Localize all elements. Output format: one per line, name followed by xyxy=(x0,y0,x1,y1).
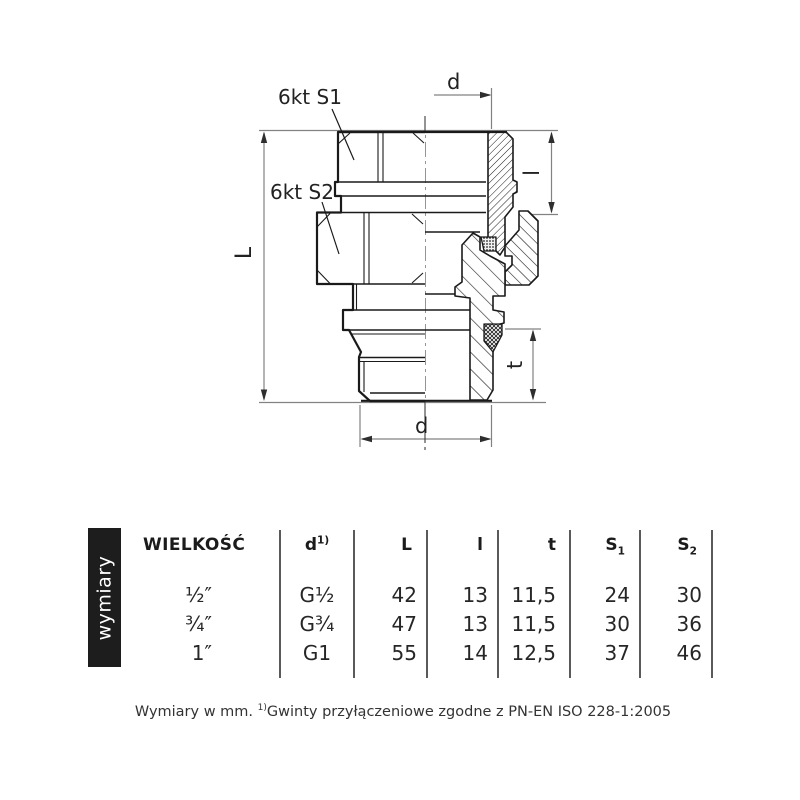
d-value: G½ xyxy=(280,580,354,610)
section-union-nut xyxy=(505,211,538,285)
seal-cone-upper xyxy=(481,237,496,251)
L-value: 47 xyxy=(354,609,427,639)
dim-d-top-label: d xyxy=(447,70,460,94)
dim-L-label: L xyxy=(232,246,257,259)
page: 6kt S1 6kt S2 d d L l t wymiary WIELKOŚĆ… xyxy=(0,0,800,800)
header-s1-base: S xyxy=(605,535,617,555)
column-header-L: L xyxy=(354,527,427,563)
dim-d-bottom-label: d xyxy=(415,414,428,438)
size-value: ½″ xyxy=(121,580,280,610)
column-header-s1: S1 xyxy=(570,527,640,563)
section-body xyxy=(455,233,505,400)
footer-sup: 1) xyxy=(258,703,267,713)
header-d-sup: 1) xyxy=(317,534,329,546)
column-header-l: l xyxy=(427,527,498,563)
t-value: 11,5 xyxy=(498,609,570,639)
dim-l-label: l xyxy=(520,170,544,176)
s2-value: 46 xyxy=(640,638,712,668)
hex-s1-label: 6kt S1 xyxy=(278,85,342,109)
s1-value: 30 xyxy=(570,609,640,639)
L-value: 42 xyxy=(354,580,427,610)
column-header-s2: S2 xyxy=(640,527,712,563)
table-row: ½″ G½ 42 13 11,5 24 30 xyxy=(121,580,712,610)
d-value: G1 xyxy=(280,638,354,668)
table-side-label: wymiary xyxy=(94,555,116,640)
column-header-size: WIELKOŚĆ xyxy=(121,527,280,563)
footer-text: Gwinty przyłączeniowe zgodne z PN-EN ISO… xyxy=(267,704,671,720)
size-value: 1″ xyxy=(121,638,280,668)
header-s2-base: S xyxy=(677,535,689,555)
column-header-d: d1) xyxy=(280,527,354,563)
header-s1-sub: 1 xyxy=(618,545,625,557)
t-value: 11,5 xyxy=(498,580,570,610)
t-value: 12,5 xyxy=(498,638,570,668)
hex-s2-label: 6kt S2 xyxy=(270,180,334,204)
L-value: 55 xyxy=(354,638,427,668)
l-value: 14 xyxy=(427,638,498,668)
d-value: G¾ xyxy=(280,609,354,639)
column-header-t: t xyxy=(498,527,570,563)
footer-prefix: Wymiary w mm. xyxy=(135,704,258,720)
table-header-row: WIELKOŚĆ d1) L l t S1 S2 xyxy=(121,527,712,563)
table-row: ¾″ G¾ 47 13 11,5 30 36 xyxy=(121,609,712,639)
technical-drawing: 6kt S1 6kt S2 d d L l t xyxy=(0,0,800,520)
dim-t-label: t xyxy=(503,361,527,369)
footer-note: Wymiary w mm. 1)Gwinty przyłączeniowe zg… xyxy=(88,704,718,720)
fitting-left-silhouette xyxy=(317,132,425,401)
header-s2-sub: 2 xyxy=(690,545,697,557)
header-d-base: d xyxy=(305,535,317,555)
l-value: 13 xyxy=(427,580,498,610)
s2-value: 30 xyxy=(640,580,712,610)
s1-value: 37 xyxy=(570,638,640,668)
s1-value: 24 xyxy=(570,580,640,610)
s2-value: 36 xyxy=(640,609,712,639)
size-value: ¾″ xyxy=(121,609,280,639)
table-side-label-box: wymiary xyxy=(88,528,121,667)
table-row: 1″ G1 55 14 12,5 37 46 xyxy=(121,638,712,668)
l-value: 13 xyxy=(427,609,498,639)
